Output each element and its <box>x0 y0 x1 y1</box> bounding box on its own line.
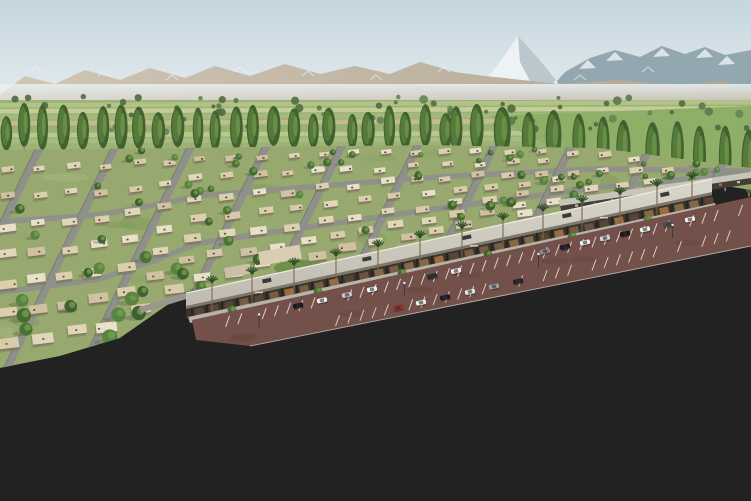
house <box>583 184 599 195</box>
house-window <box>491 199 493 201</box>
tree-highlight <box>199 188 203 192</box>
house-window <box>618 185 620 187</box>
tree-highlight <box>716 167 719 170</box>
lawn-patch <box>469 304 499 315</box>
house <box>627 156 641 165</box>
distant-tree <box>558 105 563 110</box>
house-window <box>38 251 40 253</box>
house <box>282 223 300 235</box>
storefront-sign <box>255 292 263 294</box>
house <box>0 223 17 236</box>
house-window <box>538 151 540 153</box>
tree-highlight <box>417 173 421 177</box>
house-window <box>425 208 427 210</box>
house-window <box>128 212 130 214</box>
lot-stain <box>541 258 569 264</box>
light-pole-head <box>671 224 673 226</box>
house <box>628 166 644 177</box>
house-window <box>223 175 225 177</box>
distant-tree <box>431 100 437 106</box>
house <box>248 226 267 239</box>
house <box>145 271 165 284</box>
light-pole-head <box>537 253 539 255</box>
house <box>452 186 468 197</box>
house-window <box>227 216 229 218</box>
house-window <box>137 161 139 163</box>
house-window <box>665 170 667 172</box>
house <box>120 234 138 246</box>
house-window <box>429 220 431 222</box>
distant-tree <box>107 104 111 108</box>
distant-tree <box>216 103 221 108</box>
house-window <box>546 160 548 162</box>
house-window <box>309 240 311 242</box>
poplar-highlight <box>425 112 429 134</box>
house-window <box>319 186 321 188</box>
poplar-highlight <box>177 115 182 136</box>
house-window <box>459 189 461 191</box>
distant-tree <box>135 94 142 101</box>
house <box>93 215 110 226</box>
house <box>0 279 18 293</box>
tree-highlight <box>174 155 177 158</box>
distant-tree <box>648 111 653 116</box>
tree-highlight <box>194 190 198 194</box>
tree-highlight <box>460 214 464 218</box>
planter-tree-highlight <box>231 307 235 311</box>
poplar-highlight <box>456 115 460 139</box>
house-window <box>162 206 164 208</box>
house-window <box>639 169 641 171</box>
house-window <box>587 188 589 190</box>
house-window <box>10 168 12 170</box>
distant-tree <box>120 99 127 106</box>
house-window <box>67 191 69 193</box>
aerial-render-scene <box>0 0 751 501</box>
house-window <box>384 211 386 213</box>
house-window <box>68 250 70 252</box>
tree-highlight <box>695 161 699 165</box>
palm-crown <box>250 271 253 274</box>
house-window <box>33 309 35 311</box>
house <box>30 332 54 348</box>
house <box>257 206 274 217</box>
house-window <box>292 192 294 194</box>
palm-crown <box>655 183 658 186</box>
distant-tree <box>704 107 712 115</box>
house-window <box>194 198 196 200</box>
house <box>66 324 88 338</box>
house-window <box>75 329 77 331</box>
house-window <box>128 266 130 268</box>
house <box>25 273 46 287</box>
house-window <box>336 234 338 236</box>
house-window <box>99 193 101 195</box>
house <box>500 172 515 182</box>
house <box>338 165 353 175</box>
house-window <box>98 219 100 221</box>
distant-tree <box>613 96 622 105</box>
distant-tree <box>715 125 721 131</box>
palm-crown <box>460 225 463 228</box>
house <box>420 216 437 227</box>
poplar-highlight <box>82 119 86 139</box>
lawn-patch <box>138 328 171 340</box>
house-window <box>316 256 318 258</box>
distant-tree <box>500 102 504 106</box>
house <box>155 225 173 237</box>
tree-highlight <box>644 174 647 177</box>
lot-stain <box>405 287 433 293</box>
poplar-highlight <box>252 113 256 136</box>
house-window <box>62 276 64 278</box>
house-window <box>512 151 514 153</box>
house-window <box>447 150 449 152</box>
tree-highlight <box>181 269 187 275</box>
house <box>0 248 17 261</box>
house <box>517 181 531 190</box>
house <box>386 192 401 202</box>
house <box>287 153 300 162</box>
house <box>157 180 171 190</box>
house <box>0 166 15 176</box>
poplar-highlight <box>578 123 583 151</box>
distant-tree <box>25 95 31 101</box>
house-window <box>572 153 574 155</box>
house-window <box>365 198 367 200</box>
tree-highlight <box>420 153 423 156</box>
house <box>182 233 202 246</box>
tree-highlight <box>21 296 27 302</box>
tree-highlight <box>87 269 92 274</box>
house <box>427 226 444 238</box>
palm-crown <box>501 217 504 220</box>
house-window <box>225 197 227 199</box>
storefront-accent <box>737 181 740 183</box>
distant-tree <box>419 95 428 104</box>
tree-highlight <box>451 202 456 207</box>
tree-highlight <box>98 264 104 270</box>
house-window <box>259 173 261 175</box>
palm-crown <box>541 208 544 211</box>
tree-highlight <box>543 177 548 182</box>
house-window <box>287 173 289 175</box>
house-window <box>440 179 442 181</box>
poplar-highlight <box>236 115 241 137</box>
house-window <box>3 228 5 230</box>
house <box>421 190 436 200</box>
house <box>357 195 372 205</box>
house <box>123 207 141 219</box>
house <box>380 207 395 217</box>
house-window <box>324 220 326 222</box>
house-window <box>387 180 389 182</box>
house-window <box>480 164 482 166</box>
distant-tree <box>594 122 599 127</box>
house <box>288 204 303 214</box>
house-window <box>476 150 478 152</box>
lawn-patch <box>360 155 397 162</box>
house-window <box>197 176 199 178</box>
tree-highlight <box>22 310 29 317</box>
house-window <box>379 170 381 172</box>
tree-highlight <box>24 324 31 331</box>
house <box>468 147 482 156</box>
house-window <box>213 253 215 255</box>
distant-tree <box>317 105 322 110</box>
tree-highlight <box>138 199 142 203</box>
distant-tree <box>679 100 686 107</box>
house <box>192 156 205 165</box>
tree-highlight <box>502 197 506 201</box>
house <box>217 193 234 204</box>
palm-crown <box>334 253 337 256</box>
distant-tree <box>233 98 238 103</box>
house-window <box>633 159 635 161</box>
house-window <box>167 183 169 185</box>
distant-tree <box>394 100 398 104</box>
palm-crown <box>418 235 421 238</box>
house-window <box>258 191 260 193</box>
tree-highlight <box>340 160 343 163</box>
house-window <box>160 250 162 252</box>
house <box>98 164 111 173</box>
house-window <box>36 278 38 280</box>
house-window <box>384 151 386 153</box>
house <box>379 176 395 187</box>
house <box>0 191 15 202</box>
poplar-highlight <box>445 120 450 138</box>
tree-highlight <box>703 169 707 173</box>
house-window <box>201 158 203 160</box>
poplar-highlight <box>63 113 67 137</box>
house <box>372 167 386 176</box>
house <box>116 262 137 276</box>
house <box>205 248 223 260</box>
house-window <box>351 187 353 189</box>
tree-highlight <box>141 287 146 292</box>
storefront-sign <box>470 245 478 247</box>
house-window <box>42 338 44 340</box>
tree-highlight <box>588 180 591 183</box>
tree-highlight <box>332 150 335 153</box>
house-window <box>549 201 551 203</box>
house-window <box>522 204 524 206</box>
house-window <box>519 193 521 195</box>
light-pole-head <box>258 313 260 315</box>
tree-highlight <box>128 156 132 160</box>
house-window <box>250 251 252 253</box>
house-window <box>4 253 6 255</box>
poplar-highlight <box>103 114 107 136</box>
house-window <box>98 328 100 330</box>
light-pole-head <box>403 282 405 284</box>
poplar-highlight <box>293 116 297 136</box>
tree-highlight <box>364 227 368 231</box>
lawn-patch <box>716 340 751 352</box>
house <box>133 158 147 167</box>
lawn-patch <box>449 327 480 333</box>
poplar-highlight <box>553 119 558 146</box>
house <box>26 246 46 259</box>
tree-highlight <box>144 253 150 259</box>
lawn-patch <box>523 296 547 309</box>
house-window <box>492 186 494 188</box>
house <box>386 219 404 231</box>
house-window <box>73 221 75 223</box>
house-window <box>314 169 316 171</box>
tree-highlight <box>235 161 239 165</box>
scene-canvas <box>0 0 751 501</box>
distant-tree <box>447 106 453 112</box>
house <box>60 217 77 229</box>
house <box>32 191 47 201</box>
poplar-highlight <box>328 115 333 135</box>
house <box>441 161 454 170</box>
house-window <box>188 259 190 261</box>
poplar-highlight <box>352 121 356 139</box>
poplar-highlight <box>528 121 533 147</box>
tree-highlight <box>199 282 204 287</box>
distant-tree <box>377 117 385 125</box>
poplar-highlight <box>158 120 163 140</box>
house-window <box>13 311 15 313</box>
distant-tree <box>735 110 743 118</box>
lawn-patch <box>707 263 732 269</box>
tree-highlight <box>227 237 232 242</box>
house <box>29 219 45 230</box>
distant-tree <box>219 96 226 103</box>
house <box>87 292 109 307</box>
poplar-highlight <box>389 114 393 137</box>
tree-highlight <box>34 232 39 237</box>
house <box>255 155 269 164</box>
poplar-highlight <box>215 118 219 139</box>
house <box>61 246 79 258</box>
tree-highlight <box>326 159 330 163</box>
house-window <box>103 167 105 169</box>
tree-highlight <box>108 331 116 339</box>
house <box>483 183 499 194</box>
poplar-highlight <box>273 114 278 135</box>
house <box>151 247 169 259</box>
distant-tree <box>376 102 382 108</box>
house-window <box>5 343 7 345</box>
tree-highlight <box>509 155 513 159</box>
house <box>314 182 329 192</box>
house-window <box>555 188 557 190</box>
distant-tree <box>556 96 560 100</box>
tree-highlight <box>573 175 576 178</box>
tree-highlight <box>226 207 230 211</box>
house <box>345 183 360 193</box>
house <box>536 158 549 167</box>
house-window <box>509 175 511 177</box>
tree-highlight <box>210 186 213 189</box>
tree-highlight <box>519 152 523 156</box>
lot-stain <box>227 336 255 342</box>
palm-crown <box>292 262 295 265</box>
house-window <box>262 157 264 159</box>
house-window <box>434 230 436 232</box>
house-window <box>169 289 171 291</box>
house <box>32 165 45 174</box>
house-window <box>152 276 154 278</box>
palm-crown <box>690 176 693 179</box>
house-window <box>477 174 479 176</box>
poplar-highlight <box>405 119 409 138</box>
house-window <box>341 247 343 249</box>
lot-stain <box>569 257 597 263</box>
house-window <box>520 213 522 215</box>
house-window <box>292 227 294 229</box>
poplar-highlight <box>476 112 481 137</box>
house <box>346 214 362 225</box>
storefront-accent <box>719 184 722 186</box>
house-window <box>410 236 412 238</box>
house-window <box>415 164 417 166</box>
house-window <box>202 277 204 279</box>
house-window <box>100 297 102 299</box>
house-window <box>425 193 427 195</box>
distant-tree <box>81 94 86 99</box>
tree-highlight <box>299 192 303 196</box>
tree-highlight <box>208 219 212 223</box>
house <box>549 185 565 195</box>
house <box>597 151 612 161</box>
palm-crown <box>376 244 379 247</box>
tree-highlight <box>141 148 145 152</box>
tree-highlight <box>579 182 583 186</box>
house-window <box>351 218 353 220</box>
house <box>367 237 384 248</box>
house-window <box>539 174 541 176</box>
tree-highlight <box>310 162 314 166</box>
house-window <box>193 218 195 220</box>
distant-tree <box>484 110 488 114</box>
poplar-highlight <box>677 131 681 162</box>
house-window <box>37 222 39 224</box>
house <box>279 189 296 200</box>
house <box>281 170 294 179</box>
house-window <box>163 229 165 231</box>
house <box>65 162 81 173</box>
house-window <box>326 204 328 206</box>
tree-highlight <box>509 199 514 204</box>
house <box>437 176 451 185</box>
house-window <box>13 283 15 285</box>
poplar-highlight <box>725 136 729 169</box>
poplar-highlight <box>367 119 372 138</box>
tree-highlight <box>598 171 602 175</box>
poplar-highlight <box>24 111 28 134</box>
tree-highlight <box>351 152 355 156</box>
house-window <box>74 165 76 167</box>
house <box>299 236 317 248</box>
poplar-highlight <box>138 115 143 137</box>
lawn-patch <box>722 312 749 320</box>
poplar-highlight <box>313 121 317 139</box>
house-window <box>324 154 326 156</box>
house-window <box>349 168 351 170</box>
house <box>514 190 529 200</box>
tree-highlight <box>534 147 537 150</box>
tree-highlight <box>490 151 493 154</box>
house-window <box>169 162 171 164</box>
house <box>128 185 143 195</box>
poplar-highlight <box>197 116 201 138</box>
distant-tree <box>12 96 19 103</box>
